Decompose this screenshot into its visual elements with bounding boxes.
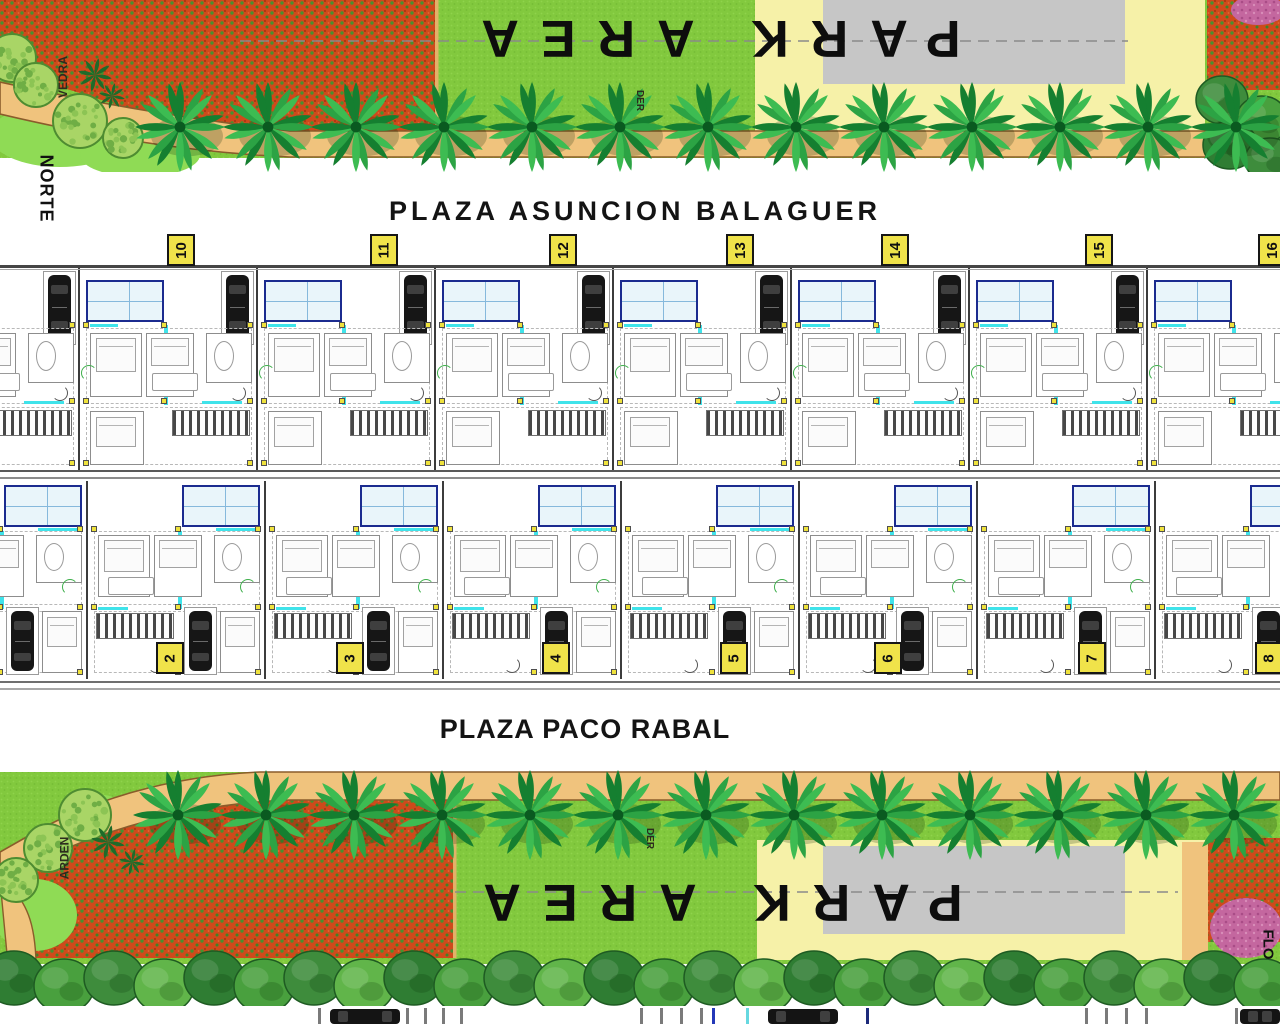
bed bbox=[1219, 338, 1257, 366]
bathtub bbox=[756, 543, 776, 571]
dining-table bbox=[864, 373, 910, 391]
wall-node bbox=[425, 322, 431, 328]
bed bbox=[808, 338, 848, 372]
dining-table bbox=[820, 577, 866, 595]
wall-node bbox=[959, 398, 965, 404]
parking-divider-line bbox=[1125, 1008, 1128, 1024]
wall-node bbox=[1229, 398, 1235, 404]
palm-tree-icon bbox=[663, 82, 753, 172]
dining-table bbox=[686, 373, 732, 391]
dining-table bbox=[508, 373, 554, 391]
bed bbox=[403, 617, 433, 647]
wall-node bbox=[0, 669, 3, 675]
wall-node bbox=[1151, 322, 1157, 328]
plot-unit-11[interactable] bbox=[256, 267, 436, 470]
wall-node bbox=[1151, 460, 1157, 466]
plot-unit-partial-bottom[interactable] bbox=[0, 481, 88, 679]
plot-badge-3[interactable]: 3 bbox=[336, 642, 364, 674]
wall-node bbox=[69, 398, 75, 404]
parking-divider-line bbox=[1105, 1008, 1108, 1024]
wall-node bbox=[517, 398, 523, 404]
wall-node bbox=[1065, 669, 1071, 675]
wall-node bbox=[91, 604, 97, 610]
bed bbox=[986, 417, 1026, 447]
mid-boundary-line1 bbox=[0, 470, 1280, 472]
bathtub bbox=[214, 341, 234, 371]
glass-wall bbox=[624, 324, 652, 327]
street-edge-label-vedra: VEDRA bbox=[38, 52, 88, 102]
glass-wall bbox=[454, 607, 484, 610]
street-edge-label-flo: FLO bbox=[1250, 922, 1280, 966]
street-title-plaza-paco-rabal: PLAZA PACO RABAL bbox=[420, 714, 750, 745]
bathtub bbox=[1112, 543, 1132, 571]
plot-number: 2 bbox=[162, 654, 179, 662]
wall-node bbox=[1065, 604, 1071, 610]
plot-unit-16[interactable] bbox=[1146, 267, 1280, 470]
wall-node bbox=[1145, 526, 1151, 532]
parking-divider-line bbox=[1085, 1008, 1088, 1024]
wall-node bbox=[425, 460, 431, 466]
bed bbox=[1164, 417, 1204, 447]
wall-node bbox=[269, 526, 275, 532]
bed bbox=[96, 338, 136, 372]
bed bbox=[329, 338, 367, 366]
wall-node bbox=[77, 526, 83, 532]
plot-number: 10 bbox=[173, 242, 190, 259]
glass-wall bbox=[1166, 607, 1196, 610]
plot-number: 6 bbox=[880, 654, 897, 662]
parking-divider-line bbox=[442, 1008, 445, 1024]
car-icon bbox=[901, 611, 924, 671]
round-tree-icon bbox=[53, 94, 107, 148]
glass-wall bbox=[268, 324, 296, 327]
wall-node bbox=[617, 398, 623, 404]
dining-table bbox=[1042, 373, 1088, 391]
bed bbox=[515, 540, 553, 568]
wall-node bbox=[1145, 669, 1151, 675]
bed bbox=[274, 338, 314, 372]
bed bbox=[808, 417, 848, 447]
glass-wall bbox=[216, 528, 256, 531]
wall-node bbox=[531, 669, 537, 675]
wall-node bbox=[1051, 322, 1057, 328]
glass-wall bbox=[98, 607, 128, 610]
palm-tree-icon bbox=[133, 770, 223, 860]
bed bbox=[630, 338, 670, 372]
plot-unit-13[interactable] bbox=[612, 267, 792, 470]
bed bbox=[1049, 540, 1087, 568]
site-plan: PLAZA ASUNCION BALAGUER PLAZA PACO RABAL… bbox=[0, 0, 1280, 1024]
wall-node bbox=[959, 460, 965, 466]
wall-node bbox=[803, 604, 809, 610]
palm-tree-icon bbox=[1189, 770, 1279, 860]
bed bbox=[638, 540, 678, 572]
wall-node bbox=[611, 604, 617, 610]
wall-node bbox=[1159, 526, 1165, 532]
glass-wall bbox=[736, 401, 776, 404]
palm-tree-icon bbox=[221, 770, 311, 860]
wall-node bbox=[887, 604, 893, 610]
palm-tree-icon bbox=[839, 82, 929, 172]
car-icon bbox=[11, 611, 34, 671]
dining-table bbox=[152, 373, 198, 391]
wall-node bbox=[625, 526, 631, 532]
wall-node bbox=[603, 460, 609, 466]
palm-tree-icon bbox=[749, 770, 839, 860]
glass-wall bbox=[1270, 401, 1280, 404]
wall-node bbox=[261, 322, 267, 328]
wall-node bbox=[447, 526, 453, 532]
glass-wall bbox=[810, 607, 840, 610]
wall-node bbox=[1145, 604, 1151, 610]
wall-node bbox=[517, 322, 523, 328]
wall-node bbox=[603, 398, 609, 404]
bed bbox=[274, 417, 314, 447]
wall-node bbox=[439, 460, 445, 466]
wall-node bbox=[709, 526, 715, 532]
wall-node bbox=[339, 398, 345, 404]
palm-tree-icon bbox=[487, 82, 577, 172]
plot-badge-5[interactable]: 5 bbox=[720, 642, 748, 674]
wall-node bbox=[795, 322, 801, 328]
bottom-curb-line1 bbox=[0, 681, 1280, 683]
palm-tree-icon bbox=[311, 82, 401, 172]
bed bbox=[452, 338, 492, 372]
swimming-pool bbox=[976, 280, 1054, 322]
wall-node bbox=[803, 526, 809, 532]
plot-badge-8[interactable]: 8 bbox=[1255, 642, 1280, 674]
wall-node bbox=[781, 460, 787, 466]
plot-number: 12 bbox=[555, 242, 572, 259]
palm-tree-icon bbox=[1015, 82, 1105, 172]
swimming-pool bbox=[798, 280, 876, 322]
glass-wall bbox=[928, 528, 968, 531]
glass-wall bbox=[632, 607, 662, 610]
wall-node bbox=[83, 398, 89, 404]
bathtub bbox=[570, 341, 590, 371]
glass-wall bbox=[24, 401, 64, 404]
palm-tree-icon bbox=[223, 82, 313, 172]
palm-tree-icon bbox=[397, 770, 487, 860]
glass-wall bbox=[1092, 401, 1132, 404]
plot-number: 5 bbox=[726, 654, 743, 662]
dining-table bbox=[286, 577, 332, 595]
swimming-pool bbox=[442, 280, 520, 322]
wall-node bbox=[77, 669, 83, 675]
bottom-parking-strip bbox=[0, 1006, 1280, 1024]
top-row-street-wall-thin bbox=[0, 269, 1280, 270]
wall-node bbox=[247, 460, 253, 466]
plot-badge-2[interactable]: 2 bbox=[156, 642, 184, 674]
wall-node bbox=[1243, 669, 1249, 675]
utility-line bbox=[712, 1008, 715, 1024]
wall-node bbox=[69, 460, 75, 466]
wall-node bbox=[781, 398, 787, 404]
plot-badge-11[interactable]: 11 bbox=[370, 234, 398, 266]
wall-node bbox=[873, 398, 879, 404]
palm-tree-icon bbox=[1103, 82, 1193, 172]
plot-number: 15 bbox=[1091, 242, 1108, 259]
glass-wall bbox=[802, 324, 830, 327]
plot-badge-6[interactable]: 6 bbox=[874, 642, 902, 674]
bathtub bbox=[400, 543, 420, 571]
wall-node bbox=[247, 398, 253, 404]
wall-node bbox=[69, 322, 75, 328]
park-area-label-top: PARK AREA bbox=[448, 8, 972, 68]
wall-node bbox=[695, 398, 701, 404]
bed bbox=[685, 338, 723, 366]
bed bbox=[96, 417, 136, 447]
parking-divider-line bbox=[700, 1008, 703, 1024]
wall-node bbox=[339, 322, 345, 328]
street-title-plaza-asuncion-balaguer: PLAZA ASUNCION BALAGUER bbox=[330, 196, 940, 227]
plot-unit-partial-top[interactable] bbox=[0, 267, 80, 470]
wall-node bbox=[1159, 604, 1165, 610]
plot-badge-10[interactable]: 10 bbox=[167, 234, 195, 266]
wall-node bbox=[433, 669, 439, 675]
bathtub bbox=[1104, 341, 1124, 371]
swimming-pool bbox=[182, 485, 260, 527]
palm-tree-icon bbox=[485, 770, 575, 860]
car-icon bbox=[1240, 1009, 1280, 1024]
plot-badge-13[interactable]: 13 bbox=[726, 234, 754, 266]
bed bbox=[759, 617, 789, 647]
wall-node bbox=[1229, 322, 1235, 328]
swimming-pool bbox=[1250, 485, 1280, 527]
wall-node bbox=[603, 322, 609, 328]
wall-node bbox=[981, 604, 987, 610]
plot-number: 3 bbox=[342, 654, 359, 662]
dining-table bbox=[330, 373, 376, 391]
parking-divider-line bbox=[680, 1008, 683, 1024]
wall-node bbox=[1243, 604, 1249, 610]
bed bbox=[225, 617, 255, 647]
bathtub bbox=[392, 341, 412, 371]
plot-unit-12[interactable] bbox=[434, 267, 614, 470]
plot-badge-12[interactable]: 12 bbox=[549, 234, 577, 266]
bed bbox=[863, 338, 901, 366]
plot-unit-14[interactable] bbox=[790, 267, 970, 470]
bed bbox=[871, 540, 909, 568]
bed bbox=[1164, 338, 1204, 372]
palm-tree-icon bbox=[837, 770, 927, 860]
bed bbox=[452, 417, 492, 447]
wall-node bbox=[617, 460, 623, 466]
bed bbox=[581, 617, 611, 647]
street-edge-label-arden: ARDEN bbox=[39, 833, 89, 883]
utility-line bbox=[746, 1008, 749, 1024]
plot-unit-10[interactable] bbox=[78, 267, 258, 470]
wall-node bbox=[789, 526, 795, 532]
parking-divider-line bbox=[318, 1008, 321, 1024]
palm-tree-icon bbox=[751, 82, 841, 172]
parking-divider-line bbox=[1145, 1008, 1148, 1024]
bed bbox=[282, 540, 322, 572]
swimming-pool bbox=[538, 485, 616, 527]
bathtub bbox=[36, 341, 56, 371]
parking-divider-line bbox=[1235, 1008, 1238, 1024]
plot-number: 13 bbox=[732, 242, 749, 259]
wall-node bbox=[83, 460, 89, 466]
bathtub bbox=[44, 543, 64, 571]
north-label: NORTE bbox=[8, 150, 84, 226]
small-marker-label-bottom: DER bbox=[632, 820, 668, 856]
wall-node bbox=[439, 322, 445, 328]
bed bbox=[0, 338, 11, 366]
glass-wall bbox=[980, 324, 1008, 327]
glass-wall bbox=[1106, 528, 1146, 531]
palm-tree-icon bbox=[661, 770, 751, 860]
bed bbox=[460, 540, 500, 572]
parking-divider-line bbox=[660, 1008, 663, 1024]
plot-badge-14[interactable]: 14 bbox=[881, 234, 909, 266]
parking-divider-line bbox=[460, 1008, 463, 1024]
wall-node bbox=[789, 604, 795, 610]
swimming-pool bbox=[86, 280, 164, 322]
dining-table bbox=[998, 577, 1044, 595]
wall-node bbox=[77, 604, 83, 610]
wall-node bbox=[269, 604, 275, 610]
wall-node bbox=[795, 460, 801, 466]
plot-unit-7[interactable] bbox=[976, 481, 1156, 679]
wall-node bbox=[433, 604, 439, 610]
wall-node bbox=[1151, 398, 1157, 404]
bed bbox=[1041, 338, 1079, 366]
wall-node bbox=[161, 398, 167, 404]
palm-tree-icon bbox=[925, 770, 1015, 860]
glass-wall bbox=[1158, 324, 1186, 327]
bathtub bbox=[926, 341, 946, 371]
wall-node bbox=[161, 322, 167, 328]
wall-node bbox=[967, 526, 973, 532]
wall-node bbox=[625, 604, 631, 610]
wall-node bbox=[873, 322, 879, 328]
dining-table bbox=[464, 577, 510, 595]
wall-node bbox=[1137, 322, 1143, 328]
wall-node bbox=[611, 526, 617, 532]
plot-unit-5[interactable] bbox=[620, 481, 800, 679]
wall-node bbox=[781, 322, 787, 328]
glass-wall bbox=[572, 528, 612, 531]
bed bbox=[630, 417, 670, 447]
swimming-pool bbox=[264, 280, 342, 322]
wall-node bbox=[709, 669, 715, 675]
glass-wall bbox=[750, 528, 790, 531]
plot-badge-4[interactable]: 4 bbox=[542, 642, 570, 674]
plot-unit-15[interactable] bbox=[968, 267, 1148, 470]
wall-node bbox=[0, 604, 3, 610]
palm-tree-icon bbox=[309, 770, 399, 860]
glass-wall bbox=[38, 528, 78, 531]
wall-node bbox=[261, 398, 267, 404]
wall-node bbox=[611, 669, 617, 675]
bed bbox=[816, 540, 856, 572]
bathtub bbox=[934, 543, 954, 571]
swimming-pool bbox=[1154, 280, 1232, 322]
car-icon bbox=[768, 1009, 838, 1024]
wall-node bbox=[981, 526, 987, 532]
bathtub bbox=[748, 341, 768, 371]
wall-node bbox=[247, 322, 253, 328]
glass-wall bbox=[914, 401, 954, 404]
parking-divider-line bbox=[406, 1008, 409, 1024]
wall-node bbox=[709, 604, 715, 610]
bed bbox=[986, 338, 1026, 372]
wall-node bbox=[531, 604, 537, 610]
bed bbox=[1172, 540, 1212, 572]
wall-node bbox=[175, 526, 181, 532]
wall-node bbox=[1137, 460, 1143, 466]
parking-divider-line bbox=[640, 1008, 643, 1024]
swimming-pool bbox=[4, 485, 82, 527]
palm-tree-icon bbox=[1013, 770, 1103, 860]
glass-wall bbox=[90, 324, 118, 327]
wall-node bbox=[695, 322, 701, 328]
wall-node bbox=[353, 604, 359, 610]
bed bbox=[693, 540, 731, 568]
plot-number: 8 bbox=[1261, 654, 1278, 662]
plot-number: 4 bbox=[548, 654, 565, 662]
plot-badge-15[interactable]: 15 bbox=[1085, 234, 1113, 266]
bed bbox=[0, 540, 19, 568]
bed bbox=[159, 540, 197, 568]
palm-tree-icon bbox=[135, 82, 225, 172]
bed bbox=[937, 617, 967, 647]
swimming-pool bbox=[716, 485, 794, 527]
wall-node bbox=[255, 604, 261, 610]
wall-node bbox=[789, 669, 795, 675]
bottom-curb-line2 bbox=[0, 688, 1280, 690]
wall-node bbox=[439, 398, 445, 404]
wall-node bbox=[0, 526, 3, 532]
wall-node bbox=[973, 322, 979, 328]
dining-table bbox=[1220, 373, 1266, 391]
small-marker-label-top: DER bbox=[622, 82, 658, 118]
palm-tree-icon bbox=[1101, 770, 1191, 860]
plot-badge-7[interactable]: 7 bbox=[1078, 642, 1106, 674]
car-icon bbox=[330, 1009, 400, 1024]
palm-tree-icon bbox=[399, 82, 489, 172]
glass-wall bbox=[988, 607, 1018, 610]
wall-node bbox=[91, 526, 97, 532]
wall-node bbox=[617, 322, 623, 328]
bed bbox=[507, 338, 545, 366]
bed bbox=[151, 338, 189, 366]
wall-node bbox=[1065, 526, 1071, 532]
plot-unit-4[interactable] bbox=[442, 481, 622, 679]
bed bbox=[104, 540, 144, 572]
bathroom bbox=[1274, 333, 1280, 383]
bathtub bbox=[222, 543, 242, 571]
glass-wall bbox=[202, 401, 242, 404]
wall-node bbox=[261, 460, 267, 466]
plot-number: 11 bbox=[375, 242, 392, 258]
dining-table bbox=[108, 577, 154, 595]
parking-divider-line bbox=[424, 1008, 427, 1024]
wall-node bbox=[959, 322, 965, 328]
swimming-pool bbox=[620, 280, 698, 322]
bed bbox=[47, 617, 77, 647]
plot-number: 14 bbox=[887, 242, 904, 259]
wall-node bbox=[1051, 398, 1057, 404]
wall-node bbox=[973, 398, 979, 404]
round-tree-icon bbox=[0, 858, 38, 902]
swimming-pool bbox=[360, 485, 438, 527]
wall-node bbox=[83, 322, 89, 328]
plot-badge-16[interactable]: 16 bbox=[1258, 234, 1280, 266]
wall-node bbox=[531, 526, 537, 532]
housing-row-top bbox=[0, 267, 1280, 470]
